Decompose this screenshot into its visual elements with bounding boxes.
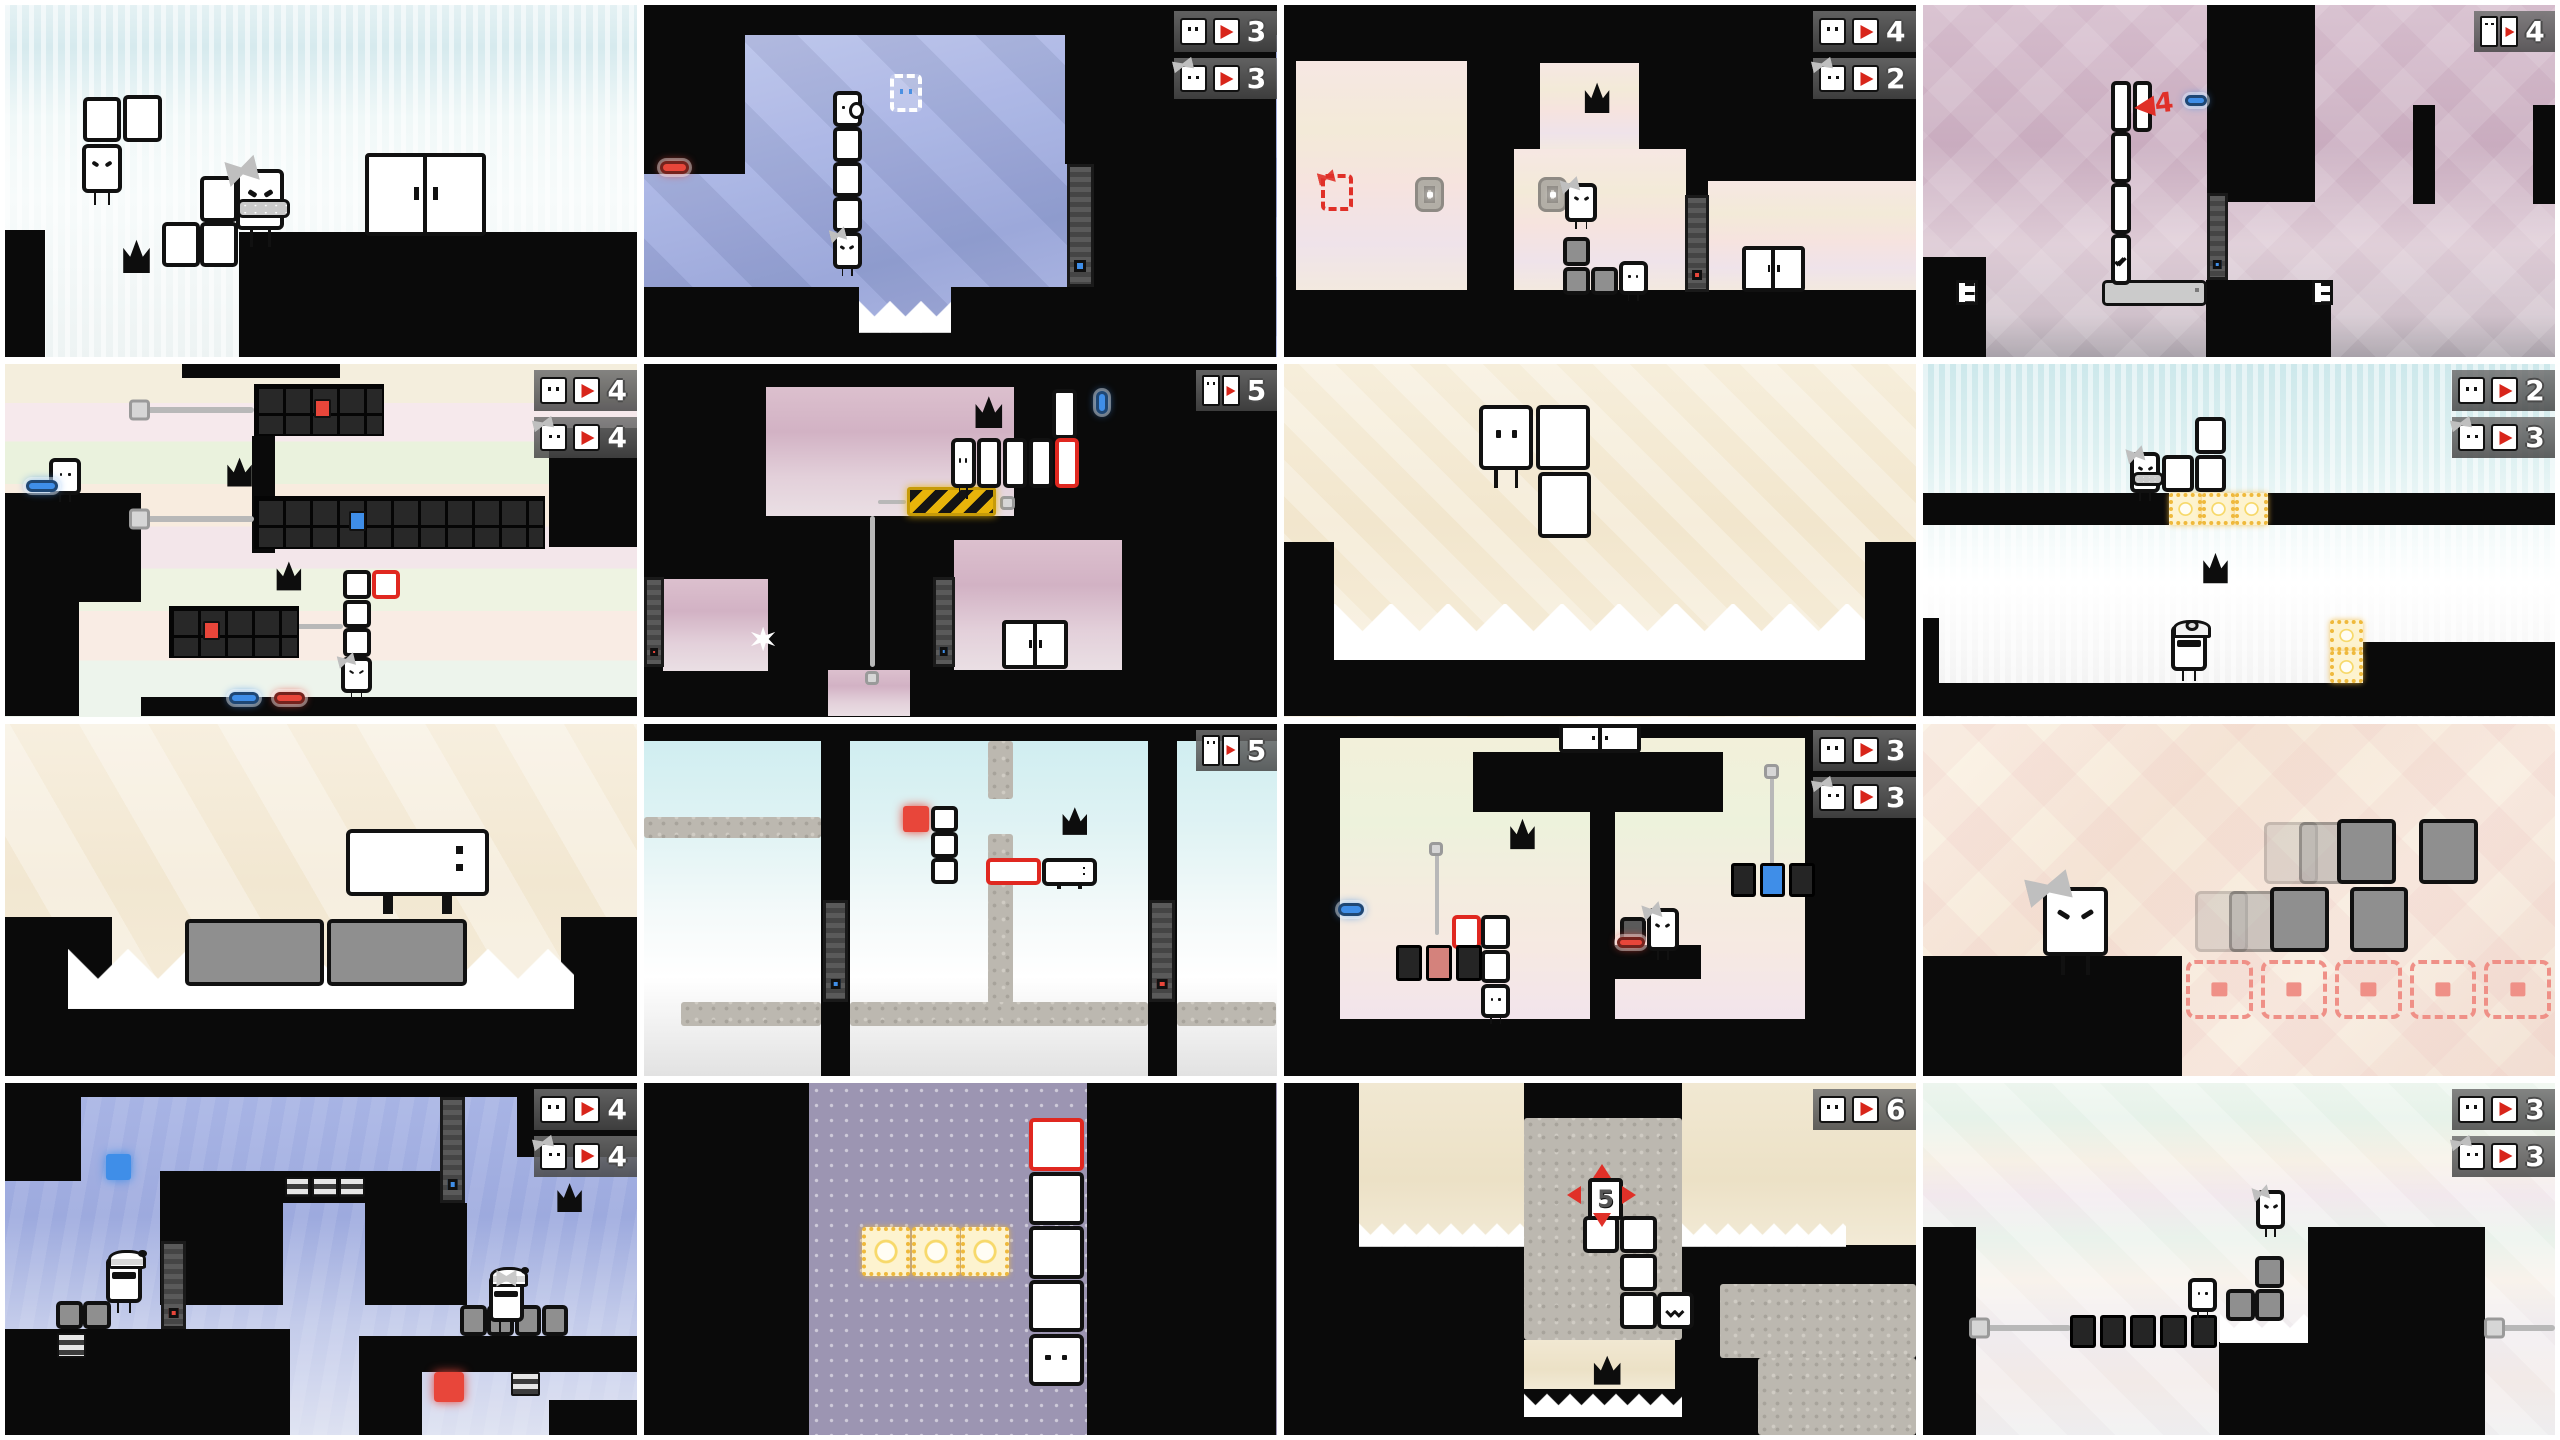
box-counters: 5: [1196, 370, 1277, 411]
box-count: 4: [606, 421, 628, 454]
box-counters: 6: [1813, 1089, 1916, 1130]
level-pale-stripes-scene: [5, 5, 637, 357]
qbby-icon: [1819, 1096, 1846, 1123]
switch-tower-blue: [823, 900, 848, 1002]
red-block: [314, 399, 331, 418]
qucy-icon: [2458, 424, 2485, 451]
crown-pickup: [274, 558, 303, 593]
qbby-icon: [1180, 18, 1207, 45]
exit-door: [1559, 724, 1641, 754]
level-stone-counter: 56: [1284, 1083, 1916, 1435]
bubble-icon: [849, 102, 864, 119]
crown-pickup: [225, 454, 254, 489]
platform: [1284, 1083, 1360, 1435]
character-qbby: [2188, 1278, 2217, 1312]
platform: [1284, 657, 1916, 717]
play-icon: [1213, 18, 1240, 45]
switch-tower-red: [1685, 195, 1709, 292]
spike-strip: [1682, 1215, 1846, 1247]
screenshot-grid: 3342◀4444523533445633: [0, 0, 2560, 1440]
blue-block: [349, 511, 366, 530]
character-qbby-angry: [82, 144, 122, 193]
hazard-strip: [907, 487, 997, 517]
box-count: 5: [1246, 734, 1268, 767]
red-switch: [274, 692, 304, 704]
dark-block-row: [254, 496, 545, 549]
qbby-icon: [2458, 377, 2485, 404]
level-pastel-lasers: 44: [5, 364, 637, 716]
bow-box: [460, 1305, 487, 1337]
level-cream-throw: [1923, 724, 2555, 1076]
platform: [5, 1329, 290, 1435]
level-stone-counter-scene: 56: [1284, 1083, 1916, 1435]
platform: [644, 1083, 808, 1435]
wrap-icon: [2132, 472, 2164, 486]
graybox: [56, 1301, 83, 1329]
rail-cap: [1429, 842, 1444, 857]
stone: [1758, 1358, 1916, 1435]
face-dots: [1485, 988, 1506, 1015]
crown-pickup: [1060, 804, 1089, 838]
qbby-icon: [1819, 737, 1846, 764]
level-pastel-lasers-scene: 44: [5, 364, 637, 716]
character-beanie: [106, 1257, 141, 1303]
level-pale-stripes: [5, 5, 637, 357]
level-periwinkle-tower: 33: [644, 5, 1276, 357]
level-mint-ledge: 33: [1923, 1083, 2555, 1435]
red-switch: [1692, 270, 1702, 280]
spike-pit: [1334, 604, 1865, 660]
whitebox: [123, 95, 163, 143]
platform: [2207, 5, 2314, 202]
crown-pickup: [555, 1180, 584, 1215]
rail: [1770, 773, 1774, 865]
blue-switch: [1096, 391, 1109, 414]
shades-icon: [112, 1272, 136, 1278]
tall-box-icon: [1202, 735, 1240, 766]
whitebox: [977, 438, 1002, 487]
box-count: 4: [606, 374, 628, 407]
character-qucy-jumping: [1565, 183, 1597, 222]
grate: [339, 1177, 364, 1197]
character-tall-qbby: [951, 438, 976, 487]
level-sand-wide: [5, 724, 637, 1076]
level-periwinkle-coop-scene: 44: [5, 1083, 637, 1435]
qucy-icon: [2458, 1143, 2485, 1170]
rail: [146, 516, 254, 522]
level-blush-warp: 42: [1284, 5, 1916, 357]
counter-qucy: 3: [1813, 777, 1916, 818]
qucy-icon: [540, 1143, 567, 1170]
qucy-icon: [1819, 784, 1846, 811]
box-count: 4: [606, 1093, 628, 1126]
face-bluedots: [894, 78, 919, 109]
whitebox: [343, 600, 371, 629]
face-angry: [86, 148, 118, 189]
character-qucy: [341, 657, 371, 692]
platform: [644, 287, 859, 357]
level-meadow-rails: 33: [1284, 724, 1916, 1076]
bow-box: [2350, 887, 2409, 952]
box-count: 6: [1885, 1093, 1907, 1126]
level-sand-spike-pit: [1284, 364, 1916, 716]
graybox: [1591, 267, 1618, 295]
blue-switch: [1338, 903, 1365, 916]
face-vv: [1661, 1296, 1690, 1325]
level-sand-wide-scene: [5, 724, 637, 1076]
box-counters: 44: [534, 1089, 637, 1177]
box-count: 5: [1246, 374, 1268, 407]
crumble-block: [961, 1227, 1009, 1276]
counter-qucy: 4: [534, 1136, 637, 1177]
face-dots: [1033, 1338, 1080, 1383]
level-periwinkle-tower-scene: 33: [644, 5, 1276, 357]
box-counters: 33: [2452, 1089, 2555, 1177]
whitebox: [931, 832, 959, 858]
stone: [1177, 1002, 1277, 1027]
warp-pad: [1415, 177, 1444, 212]
level-ice-crumble: 23: [1923, 364, 2555, 716]
counter-qbby: 4: [534, 370, 637, 411]
character-qucy-throwing: [2043, 887, 2108, 956]
platform: [65, 1005, 577, 1075]
whitebox: [343, 570, 371, 599]
graybox: [2255, 1289, 2284, 1321]
counter-tall: 5: [1196, 730, 1277, 771]
whitebox: [1536, 405, 1590, 470]
level-mauve-hazard-scene: 5: [644, 364, 1276, 716]
platform: [1923, 683, 2555, 716]
switch-tower-blue: [933, 577, 954, 667]
platform: [951, 287, 1277, 357]
character-qucy: [1647, 908, 1679, 950]
character-qbby: [1619, 261, 1648, 295]
red-switch: [650, 648, 658, 656]
counter-qucy: 4: [534, 417, 637, 458]
counter-qbby: 3: [1813, 730, 1916, 771]
qucy-icon: [1819, 65, 1846, 92]
whitebox: [833, 162, 862, 197]
level-mauve-hazard: 5: [644, 364, 1276, 716]
counter-qbby: 4: [1813, 11, 1916, 52]
crumble-block: [2202, 493, 2235, 525]
box-count: 3: [1246, 15, 1268, 48]
platform: [1087, 1083, 1277, 1435]
whitebox: [2195, 455, 2227, 492]
platform: [1094, 164, 1276, 287]
target-zone: [2182, 956, 2555, 1023]
graybox: [83, 1301, 110, 1329]
platform: [1473, 752, 1723, 812]
platform: [2308, 1227, 2485, 1435]
counter-tall: 4: [2474, 11, 2555, 52]
face-dots: [1483, 409, 1529, 466]
counter-qbby: 2: [2452, 370, 2555, 411]
level-cream-throw-scene: [1923, 724, 2555, 1076]
spike-pit: [859, 301, 951, 333]
counter-qucy: 2: [1813, 58, 1916, 99]
level-ice-crumble-scene: 23: [1923, 364, 2555, 716]
box-counters: 33: [1174, 11, 1277, 99]
platform: [365, 1203, 466, 1305]
bow-box: [2337, 819, 2396, 884]
whitebox: [1029, 1172, 1084, 1225]
box-count: 4: [1885, 15, 1907, 48]
play-icon: [2491, 1096, 2518, 1123]
counter-qbby: 4: [534, 1089, 637, 1130]
whitebox: [1620, 1292, 1657, 1329]
whitebox: [2162, 455, 2194, 492]
switch-tower-red: [644, 577, 664, 667]
face-angry: [837, 236, 858, 265]
play-icon: [1213, 65, 1240, 92]
qucy-icon: [540, 424, 567, 451]
whitebox: [1029, 1280, 1084, 1333]
counter-qucy: 3: [2452, 1136, 2555, 1177]
grate: [511, 1372, 540, 1397]
play-icon: [573, 377, 600, 404]
switch-tower-blue: [1067, 164, 1095, 287]
play-icon: [2491, 1143, 2518, 1170]
play-icon: [2491, 377, 2518, 404]
whitebox: [931, 806, 959, 832]
whitebox: [931, 858, 959, 884]
switch-tower-blue: [2207, 193, 2228, 279]
crumble-block: [862, 1227, 910, 1276]
platform: [239, 232, 637, 357]
whitebox: [1481, 950, 1510, 984]
blue-switch: [831, 979, 842, 990]
box-count: 3: [2524, 1093, 2546, 1126]
play-icon: [573, 424, 600, 451]
box-counters: 5: [1196, 730, 1277, 771]
rail: [2501, 1325, 2555, 1331]
character-qbby-wide: [346, 829, 488, 896]
room-mauvem: [663, 579, 767, 671]
whitebox: [2195, 417, 2227, 454]
level-sand-spike-pit-scene: [1284, 364, 1916, 716]
counter-qucy: 3: [2452, 417, 2555, 458]
whitebox: [83, 97, 121, 143]
red-annotation: ◀4: [2133, 89, 2174, 121]
platform: [1524, 1083, 1682, 1118]
red-switch: [660, 161, 689, 174]
switch-tower-red: [1149, 900, 1174, 1002]
face-angry: [2047, 891, 2104, 952]
box-counters: 4: [2474, 11, 2555, 52]
room-blush: [1708, 181, 1915, 290]
level-violet-shaft: [644, 1083, 1276, 1435]
character-qbby-shades: [2171, 625, 2206, 671]
bow-box: [2419, 819, 2478, 884]
qbby-icon: [540, 377, 567, 404]
level-violet-shaft-scene: [644, 1083, 1276, 1435]
whitebox: [1481, 915, 1510, 949]
rail: [870, 516, 875, 667]
play-icon: [2491, 424, 2518, 451]
platform: [5, 1097, 81, 1182]
platform: [2219, 1342, 2309, 1435]
box-count: 4: [606, 1140, 628, 1173]
whitebox: [200, 222, 238, 268]
exit-door: [365, 153, 485, 236]
qbby-icon: [1819, 18, 1846, 45]
graybox: [185, 919, 324, 986]
red-block: [203, 621, 220, 640]
level-meadow-rails-scene: 33: [1284, 724, 1916, 1076]
bow-box: [2270, 887, 2329, 952]
red-switch: [1157, 979, 1168, 990]
dark-block-row: [2070, 1315, 2217, 1348]
exit-door: [1742, 246, 1805, 292]
red-outline-box: [372, 570, 400, 599]
blue-switch: [229, 692, 259, 704]
tall-box-icon: [2480, 16, 2518, 47]
box-count: 3: [1885, 734, 1907, 767]
crumble-block: [2169, 493, 2202, 525]
play-icon: [1852, 737, 1879, 764]
rail: [878, 500, 906, 504]
face-angry: [1651, 912, 1675, 946]
graybox: [1563, 267, 1590, 295]
box-counters: 42: [1813, 11, 1916, 99]
spike-strip: [1359, 1215, 1523, 1247]
character-qucy-wrapped: [2130, 452, 2160, 493]
play-icon: [1852, 18, 1879, 45]
platform: [2413, 105, 2434, 204]
platform: [359, 1336, 637, 1371]
dark-blocks-red: [1396, 945, 1482, 980]
counter-qbby: 6: [1813, 1089, 1916, 1130]
whitebox: [1029, 438, 1054, 487]
ghost-box: [890, 74, 923, 113]
platform: [859, 329, 951, 357]
platform: [1923, 956, 2182, 1076]
blue-switch: [26, 480, 58, 492]
box-count: 3: [1885, 781, 1907, 814]
level-periwinkle-coop: 44: [5, 1083, 637, 1435]
stone: [644, 817, 821, 838]
wrap-icon: [237, 199, 290, 219]
play-icon: [1852, 65, 1879, 92]
character-qbby: [1481, 984, 1510, 1019]
whitebox: [1003, 438, 1028, 487]
character-qbby-blowing: [833, 91, 862, 126]
crumble-block: [2330, 620, 2363, 652]
graybox: [2226, 1289, 2255, 1321]
whitebox: [1052, 389, 1077, 439]
box-count: 2: [1885, 62, 1907, 95]
qbby-icon: [2458, 1096, 2485, 1123]
character-qucy: [833, 232, 862, 269]
dark-block-row: [169, 606, 299, 659]
crumble-block: [912, 1227, 960, 1276]
character-beanie-bow: [489, 1275, 524, 1323]
grate: [312, 1177, 337, 1197]
level-snow-stone: 5: [644, 724, 1276, 1076]
rail-cap: [865, 671, 880, 685]
red-outline-box: [1029, 1118, 1084, 1171]
box-count: 3: [2524, 1140, 2546, 1173]
box-count: 3: [1246, 62, 1268, 95]
platform: [141, 697, 637, 716]
platform: [5, 230, 45, 357]
face-dots: [2192, 1282, 2213, 1308]
whitebox: [343, 628, 371, 657]
crown-pickup: [2201, 549, 2230, 586]
platform: [5, 602, 79, 716]
rail: [1986, 1325, 2071, 1331]
wall-clamp: [1956, 280, 1977, 305]
platform: [2533, 105, 2555, 204]
dark-blocks-blue: [1731, 863, 1814, 898]
platform: [2268, 493, 2555, 525]
shades-icon: [494, 1291, 518, 1298]
spike-strip: [1524, 1389, 1682, 1417]
character-qbby-climbing: [1029, 1334, 1084, 1387]
grate: [285, 1177, 310, 1197]
counter-qbby: 3: [2452, 1089, 2555, 1130]
whitebox: [2111, 132, 2131, 183]
whitebox: [1620, 1216, 1657, 1253]
switch-tower-red: [161, 1241, 186, 1329]
blue-switch: [2213, 260, 2222, 269]
blue-switch: [940, 647, 949, 656]
stone: [850, 1002, 1147, 1027]
red-block: [434, 1372, 464, 1402]
box-count: 4: [2524, 15, 2546, 48]
counter-qbby: 3: [1174, 11, 1277, 52]
red-outline-box: [1055, 438, 1080, 487]
face-dots: [955, 442, 972, 483]
qbby-icon: [540, 1096, 567, 1123]
face-angry: [1569, 187, 1593, 218]
platform: [359, 1372, 422, 1435]
level-blush-warp-scene: 42: [1284, 5, 1916, 357]
beanie-icon: [108, 1250, 146, 1270]
face-vv: [2115, 238, 2127, 281]
stone: [1720, 1284, 1916, 1358]
rail-cap: [1000, 496, 1015, 510]
shades-icon: [2177, 640, 2201, 646]
graybox: [1563, 237, 1590, 265]
blue-switch: [1074, 260, 1086, 272]
wall-clamp: [2312, 280, 2333, 305]
numbered-box-5: 5: [1583, 1176, 1621, 1215]
red-switch: [1617, 937, 1645, 948]
stone: [681, 1002, 821, 1027]
blue-switch: [2185, 95, 2206, 106]
counter-tall: 5: [1196, 370, 1277, 411]
play-icon: [1852, 1096, 1879, 1123]
platform: [182, 364, 340, 378]
platform: [1923, 493, 2170, 525]
rail-cap: [1764, 764, 1779, 779]
red-switch: [169, 1308, 180, 1319]
platform: [644, 35, 745, 174]
box-count: 3: [2524, 421, 2546, 454]
character-qbby-vv: [1657, 1292, 1694, 1329]
play-icon: [1852, 784, 1879, 811]
platform: [1590, 812, 1615, 1020]
blue-switch: [447, 1179, 458, 1190]
rail: [1435, 850, 1439, 935]
platform: [1359, 1245, 1523, 1435]
play-icon: [573, 1143, 600, 1170]
box-count: 2: [2524, 374, 2546, 407]
counter-qucy: 3: [1174, 58, 1277, 99]
face-dotsv: [1046, 862, 1093, 881]
